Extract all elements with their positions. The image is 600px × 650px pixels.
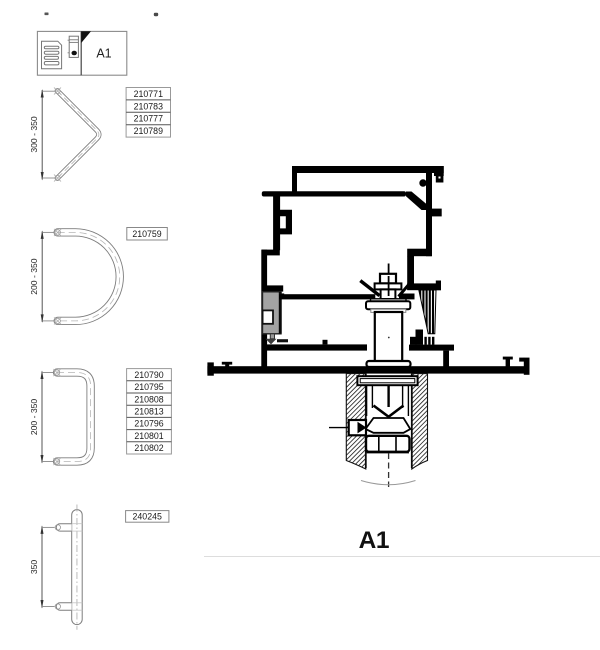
svg-text:210813: 210813 [134,407,163,417]
svg-text:350: 350 [29,560,39,575]
svg-text:A1: A1 [359,527,389,554]
svg-text:210777: 210777 [134,114,163,124]
svg-text:210790: 210790 [134,370,163,380]
svg-text:210796: 210796 [134,419,163,429]
svg-text:210783: 210783 [134,101,163,111]
svg-text:210802: 210802 [134,443,163,453]
svg-text:210808: 210808 [134,394,163,404]
svg-text:240245: 240245 [133,511,162,521]
svg-text:300 - 350: 300 - 350 [29,116,39,153]
svg-text:200 - 350: 200 - 350 [29,258,39,295]
svg-text:200 - 350: 200 - 350 [29,399,39,436]
svg-text:A1: A1 [96,47,111,61]
svg-text:210771: 210771 [134,89,163,99]
svg-text:210801: 210801 [134,431,163,441]
svg-text:210795: 210795 [134,382,163,392]
svg-text:210759: 210759 [132,229,161,239]
svg-text:210789: 210789 [134,126,163,136]
